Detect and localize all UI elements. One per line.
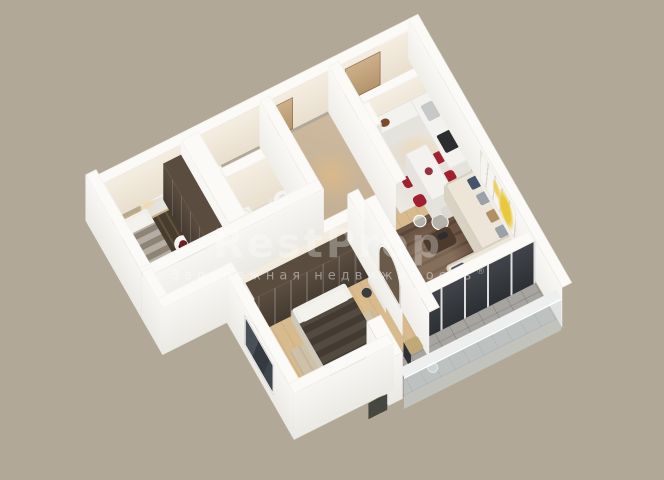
tray-deco [437, 231, 449, 241]
vase-deco [423, 166, 434, 177]
apartment-3d-render: RestProp Зарубежная недвижимость® [0, 0, 664, 480]
